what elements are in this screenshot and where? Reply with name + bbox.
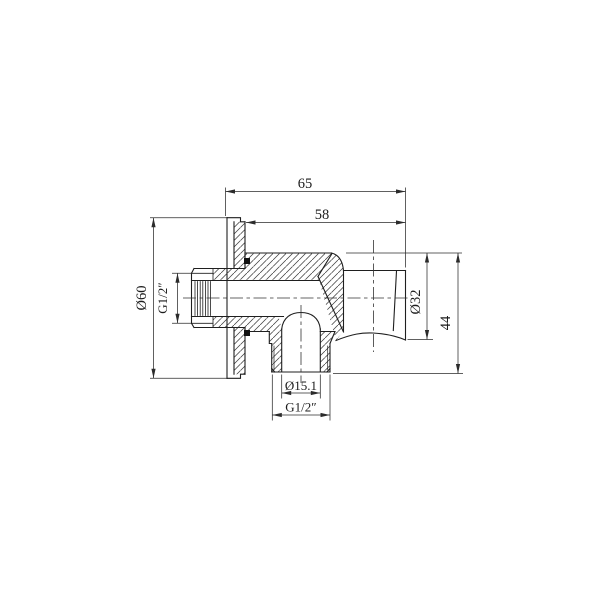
dim-label-holder-diameter: Ø32	[408, 290, 424, 315]
hatch-pipe-wall-top	[213, 269, 245, 281]
hatch-flange-bottom	[234, 328, 245, 375]
holder-cup-outline	[336, 271, 406, 341]
dim-label-outlet-thread: G1/2″	[285, 400, 316, 415]
dim-label-overall-width: 65	[298, 176, 313, 192]
hatch-pipe-wall-bottom	[213, 317, 245, 328]
dim-label-side-height: 44	[438, 315, 454, 330]
o-ring-seal-bottom	[244, 330, 250, 336]
technical-drawing: 65 58 Ø60 G1/2″ Ø32 44 Ø15.1 G1/2″	[0, 0, 600, 600]
inlet-thread-lines	[195, 282, 211, 316]
dim-label-outlet-bore: Ø15.1	[285, 378, 317, 393]
o-ring-seal-top	[244, 258, 250, 264]
dim-label-flange-diameter: Ø60	[134, 286, 150, 311]
hatch-body-lower-left	[245, 317, 282, 373]
dim-label-body-width: 58	[315, 207, 330, 223]
hatch-flange-top	[234, 222, 245, 269]
dim-label-inlet-thread: G1/2″	[155, 282, 170, 313]
drawing-canvas: 65 58 Ø60 G1/2″ Ø32 44 Ø15.1 G1/2″	[0, 0, 600, 600]
